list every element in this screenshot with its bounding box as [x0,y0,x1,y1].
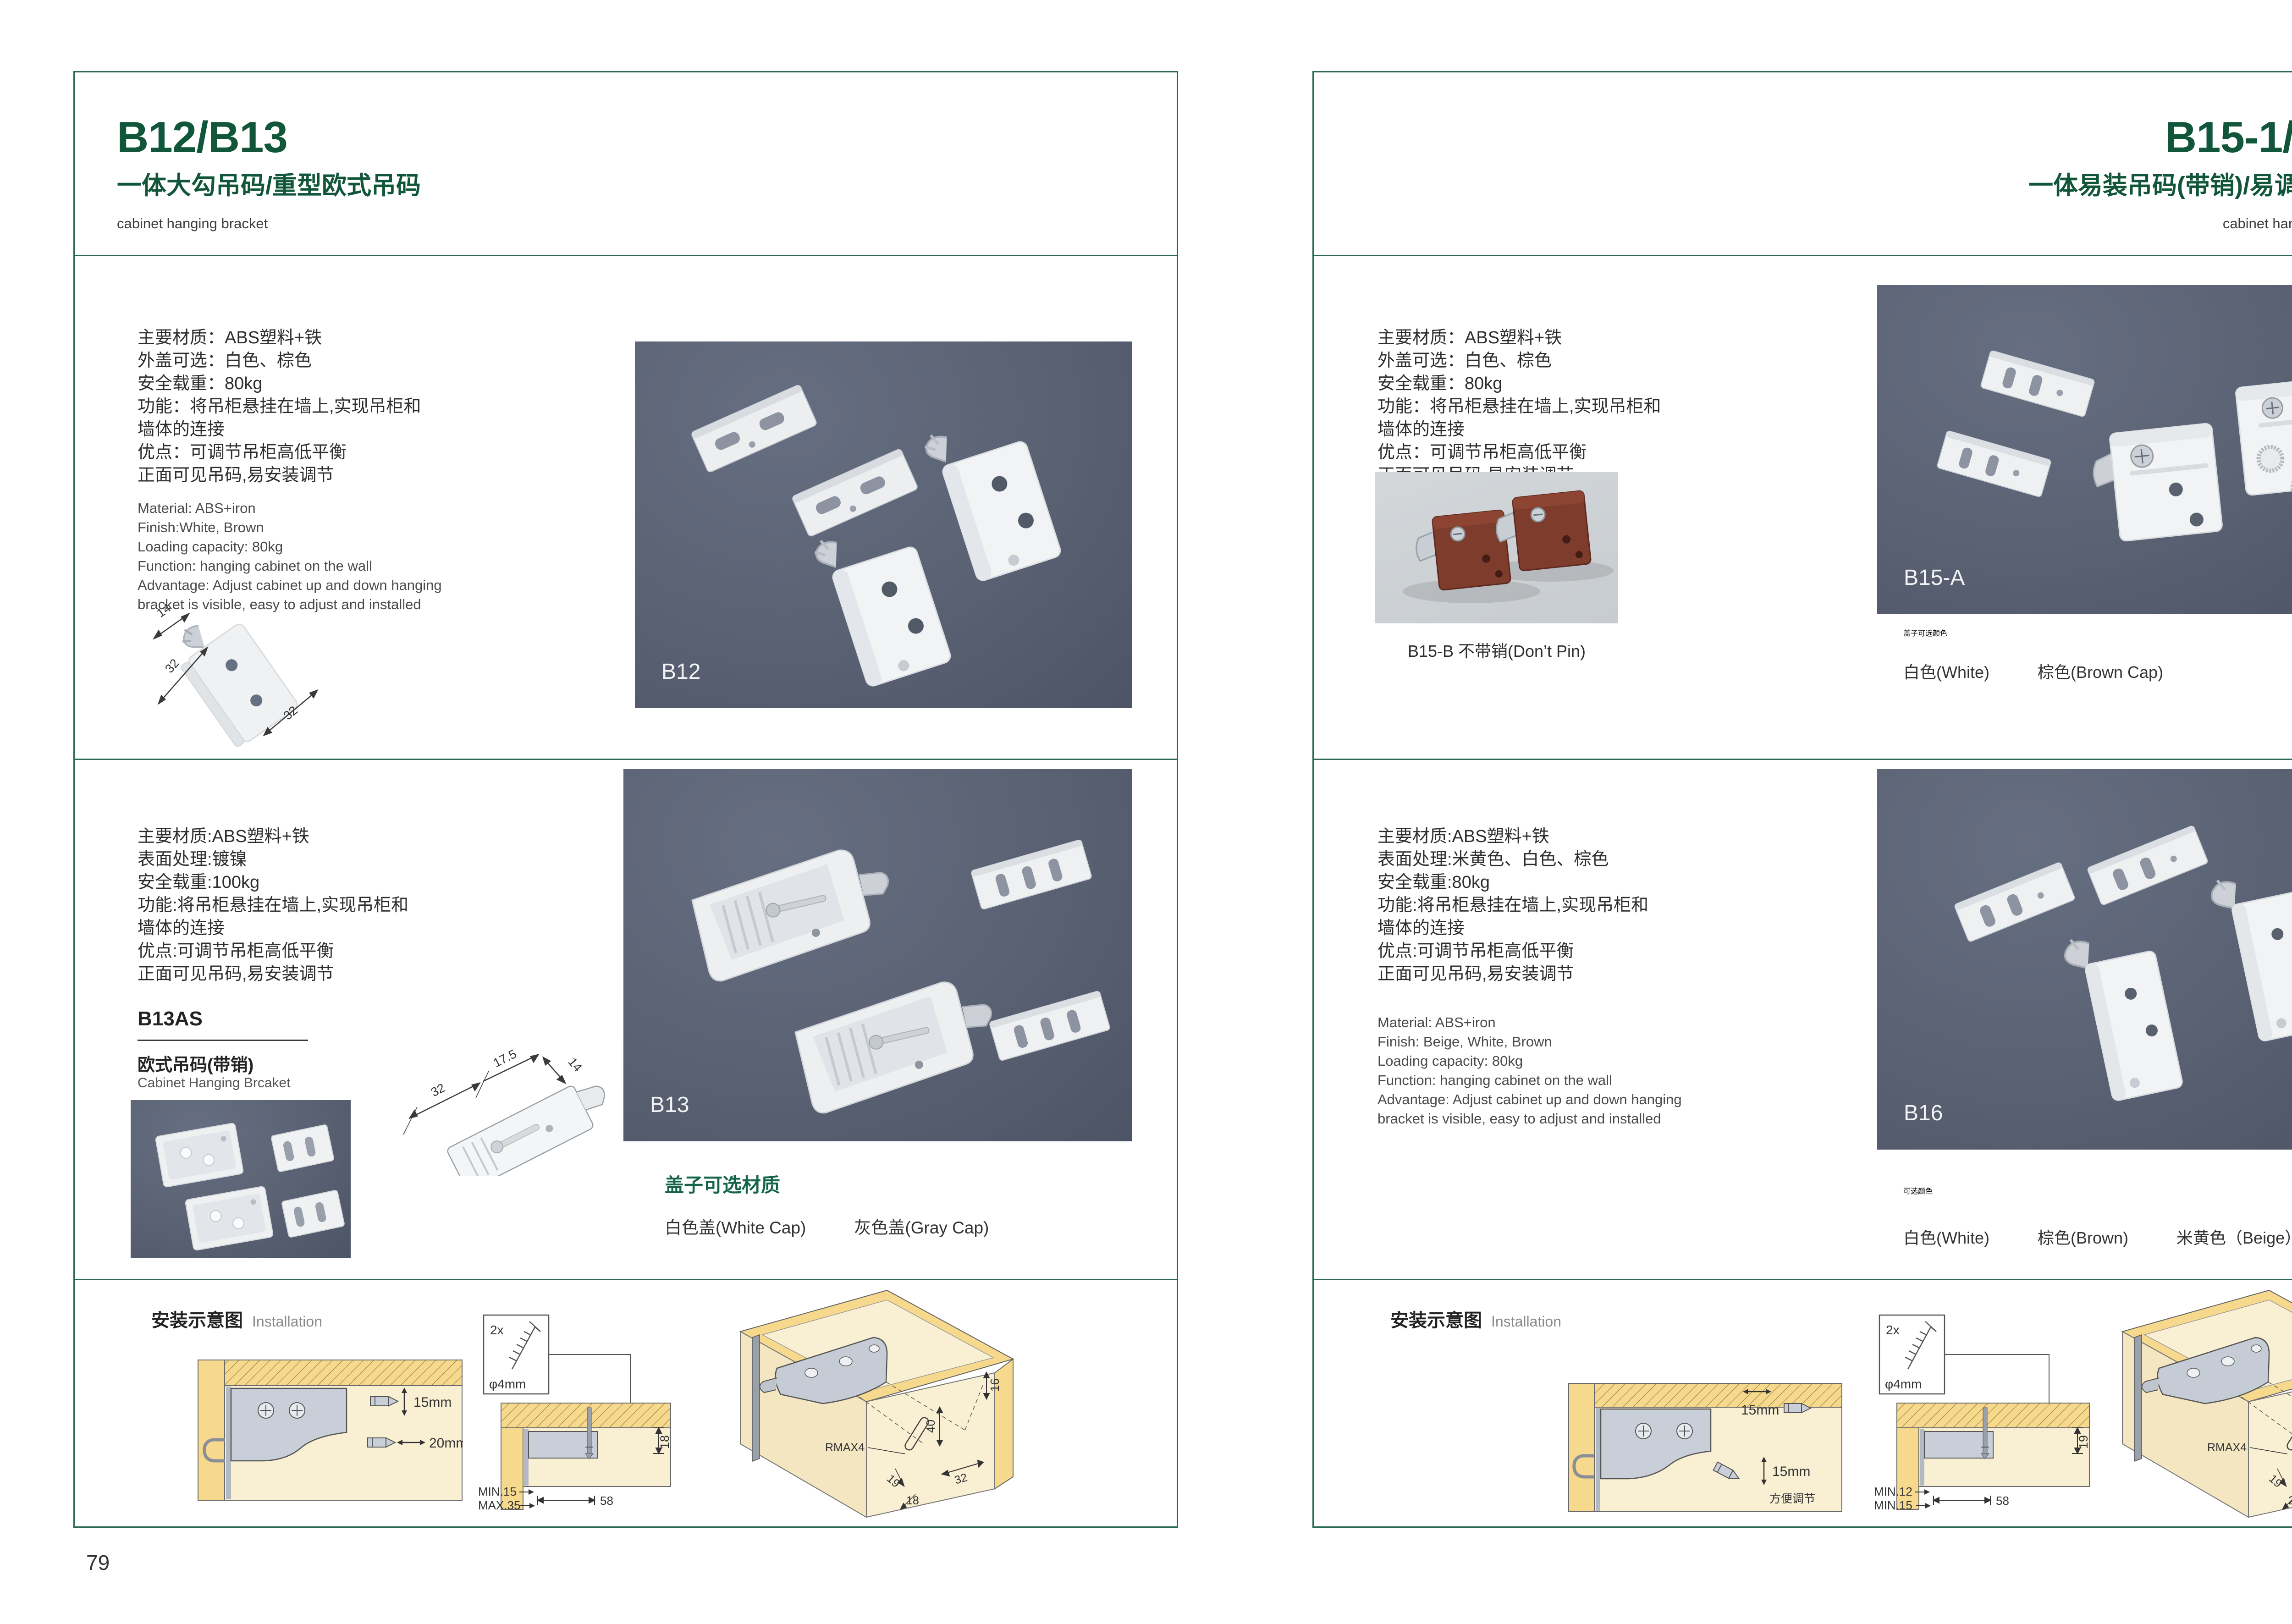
spec-line: 主要材质：ABS塑料+铁 [1377,326,1661,349]
spec-line: 优点：可调节吊柜高低平衡 [1377,441,1661,464]
b16-options: 白色(White)棕色(Brown)米黄色（Beige） [1903,1225,2292,1249]
dim-label: RMAX4 [2207,1441,2247,1454]
spec-line: 正面可见吊码,易安装调节 [138,963,408,985]
dim-label: 15mm [1741,1403,1779,1418]
dim-label: 20 [2288,1494,2292,1507]
spec-line: 优点:可调节吊柜高低平衡 [138,940,408,963]
photo-label: B13 [650,1092,689,1118]
screw-diameter: φ4mm [489,1377,526,1391]
dim-label: 58 [600,1494,613,1508]
installation-title-cn: 安装示意图 [1390,1310,1482,1331]
install-diagram-screw-section: 2x φ4mm 18 MIN.15 MAX.35 [474,1313,672,1510]
page-tagline: cabinet hanging bracket [117,216,268,231]
spec-line: 功能:将吊柜悬挂在墙上,实现吊柜和 [138,894,408,917]
dim-58 [1934,1496,1990,1505]
install-diagram-cross-section: 15mm 15mm 方便调节 [1568,1348,1843,1513]
b15-options: 白色(White)棕色(Brown Cap) [1903,659,2211,683]
spec-line: 外盖可选：白色、棕色 [138,349,421,372]
spec-line: bracket is visible, easy to adjust and i… [1377,1109,1682,1129]
install-diagram-screw-section: 2x φ4mm 19 MIN.12 MIN.15 [1870,1313,2090,1510]
b13-options: 白色盖(White Cap)灰色盖(Gray Cap) [665,1214,1037,1239]
dim-label: MAX.35 [478,1498,521,1510]
catalog-spread: B12/B13 一体大勾吊码/重型欧式吊码 cabinet hanging br… [0,0,2292,1624]
installation-heading: 安装示意图Installation [1390,1305,1561,1332]
spec-line: Finish: Beige, White, Brown [1377,1032,1682,1051]
dim-label: 58 [1996,1494,2009,1508]
metal-rail [271,1124,334,1172]
option-white: 白色(White) [1903,1228,1989,1247]
dim-label: 32 [429,1081,447,1099]
dim-label: 20mm [429,1436,463,1451]
metal-rail [2087,825,2209,905]
b13-specs-cn: 主要材质:ABS塑料+铁 表面处理:镀镍 安全载重:100kg 功能:将吊柜悬挂… [138,825,408,985]
spec-line: 正面可见吊码,易安装调节 [138,464,421,487]
installation-heading: 安装示意图Installation [151,1305,322,1332]
page-right-header-divider [1312,255,2292,256]
page-subtitle: 一体大勾吊码/重型欧式吊码 [117,173,421,198]
spec-line: 主要材质：ABS塑料+铁 [138,326,421,349]
b15b-product-photo [1375,472,1618,623]
dim-label: 15mm [413,1395,452,1410]
b12-specs-cn: 主要材质：ABS塑料+铁 外盖可选：白色、棕色 安全载重：80kg 功能：将吊柜… [138,326,421,487]
metal-rail [792,448,919,537]
spec-line: 墙体的连接 [1377,917,1648,940]
option-white-cap: 白色盖(White Cap) [665,1218,806,1237]
b15b-caption: B15-B 不带销(Don’t Pin) [1366,638,1627,662]
screw-diameter: φ4mm [1885,1377,1922,1391]
dim-label: 18 [658,1435,672,1449]
photo-label: B15-A [1904,565,1965,590]
hanging-bracket [2062,923,2183,1105]
hanging-bracket [2235,377,2292,505]
page-tagline: cabinet hanging bracket [1650,216,2292,231]
spec-line: Advantage: Adjust cabinet up and down ha… [1377,1090,1682,1109]
cover-plate [155,1123,244,1188]
spec-line: Material: ABS+iron [138,499,442,518]
spec-line: 优点：可调节吊柜高低平衡 [138,441,421,464]
wall-panel [1569,1383,1594,1512]
b16-options-title: 可选颜色 [1903,1185,1933,1196]
option-white: 白色(White) [1903,663,1989,682]
dim-label: MIN.15 [1874,1498,1912,1510]
b13-name-en: Cabinet Hanging Brcaket [138,1075,291,1091]
hanging-bracket [689,841,902,983]
bracket-outline [446,1073,616,1176]
spec-line: Finish:White, Brown [138,518,442,537]
screw-count: 2x [490,1323,504,1337]
dim-label: 32 [162,656,182,676]
dim-label: 18 [906,1494,919,1507]
spec-line: 功能:将吊柜悬挂在墙上,实现吊柜和 [1377,894,1648,917]
spec-line: 正面可见吊码,易安装调节 [1377,963,1648,985]
b15-specs-cn: 主要材质：ABS塑料+铁 外盖可选：白色、棕色 安全载重：80kg 功能：将吊柜… [1377,326,1661,487]
page-title: B12/B13 [117,116,287,160]
hanging-bracket [922,408,1062,585]
spec-line: 主要材质:ABS塑料+铁 [1377,825,1648,848]
wall-rail [524,1429,529,1486]
option-brown-cap: 棕色(Brown Cap) [2038,663,2163,682]
install-diagram-cross-section: 15mm 20mm [197,1350,463,1501]
metal-rail [989,991,1111,1061]
dim-label: 14 [565,1055,584,1074]
dim-label: 14 [154,601,173,620]
spec-line: 安全载重:100kg [138,871,408,894]
hanging-bracket [812,513,952,690]
metal-rail [1937,430,2051,497]
page-right-section-divider [1312,759,2292,760]
option-brown: 棕色(Brown) [2038,1228,2128,1247]
cabinet-top-panel [1897,1403,2089,1428]
installation-title-en: Installation [252,1313,322,1330]
wall-rail [1596,1408,1600,1511]
metal-rail [1980,350,2095,417]
cabinet-top-panel [225,1360,462,1386]
leader-line [549,1354,630,1403]
wall-panel [198,1360,225,1500]
spec-line: Function: hanging cabinet on the wall [138,556,442,576]
spec-line: 安全载重：80kg [138,372,421,395]
spec-line: 表面处理:米黄色、白色、棕色 [1377,848,1648,871]
metal-rail [971,839,1092,910]
b13-name-cn: 欧式吊码(带销) [138,1051,253,1076]
dim-label: 15mm [1772,1464,1810,1479]
photo-label: B12 [661,659,700,684]
installation-title-en: Installation [1491,1313,1561,1330]
spec-line: 优点:可调节吊柜高低平衡 [1377,940,1648,963]
photo-label: B16 [1904,1101,1943,1126]
b13-product-photo: B13 [623,769,1132,1141]
b13as-product-photo [131,1100,351,1258]
spec-line: 墙体的连接 [138,917,408,940]
option-gray-cap: 灰色盖(Gray Cap) [854,1218,989,1237]
dim-label: 16 [988,1378,1002,1392]
b16-product-photo: B16 [1877,769,2292,1150]
spec-line: 功能：将吊柜悬挂在墙上,实现吊柜和 [1377,395,1661,418]
spec-line: 功能：将吊柜悬挂在墙上,实现吊柜和 [138,395,421,418]
b16-specs-en: Material: ABS+iron Finish: Beige, White,… [1377,1013,1682,1129]
spec-line: Material: ABS+iron [1377,1013,1682,1032]
spec-line: Loading capacity: 80kg [1377,1051,1682,1071]
metal-rail [1954,862,2076,942]
dim-label: RMAX4 [825,1441,865,1454]
spec-line: 安全载重:80kg [1377,871,1648,894]
wall-rail [752,1335,760,1461]
b15a-product-photo: B15-A [1877,285,2292,614]
hanging-bracket [792,973,1005,1115]
b13-options-title: 盖子可选材质 [665,1170,780,1198]
dim-58 [538,1496,595,1505]
cover-plate [185,1186,274,1251]
leader-line [1945,1354,2049,1403]
metal-rail [281,1190,345,1238]
hanging-bracket [2089,423,2222,544]
brown-bracket [1413,510,1511,592]
spec-line: 墙体的连接 [1377,418,1661,441]
spec-line: Function: hanging cabinet on the wall [1377,1071,1682,1090]
page-title: B15-1/B16 [1650,116,2292,160]
cabinet-top-panel [501,1403,671,1428]
wall-rail [1920,1429,1924,1486]
spec-line: 表面处理:镀镍 [138,848,408,871]
spec-line: 外盖可选：白色、棕色 [1377,349,1661,372]
page-number-left: 79 [86,1550,110,1575]
wall-rail [2134,1335,2142,1461]
spec-line: 安全载重：80kg [1377,372,1661,395]
page-subtitle: 一体易装吊码(带销)/易调节吊码 [1650,173,2292,198]
hanging-bracket [2209,864,2292,1045]
dim-label: 19 [2077,1435,2090,1449]
dim-label: 40 [924,1420,937,1433]
wall-rail [226,1387,231,1499]
option-beige: 米黄色（Beige） [2176,1228,2292,1247]
b16-specs-cn: 主要材质:ABS塑料+铁 表面处理:米黄色、白色、棕色 安全载重:80kg 功能… [1377,825,1648,985]
b13-code-underline [138,1040,308,1041]
b13as-dimension-diagram: 32 17.5 14 [399,1020,619,1176]
screw-count: 2x [1886,1323,1900,1337]
spec-line: 主要材质:ABS塑料+铁 [138,825,408,848]
page-left-section-divider [73,759,1178,760]
page-left-header-divider [73,255,1178,256]
b12-product-photo: B12 [635,341,1132,708]
installation-title-cn: 安装示意图 [151,1310,243,1331]
metal-rail [691,384,818,473]
install-diagram-perspective: 30 32 RMAX4 19 20 32 [2090,1279,2292,1522]
cabinet-top-panel [1594,1383,1842,1407]
spec-line: 墙体的连接 [138,418,421,441]
b13-product-code: B13AS [138,1007,203,1030]
b15-options-title: 盖子可选颜色 [1903,627,1947,638]
hanging-bracket [164,601,299,749]
note-label: 方便调节 [1769,1492,1815,1505]
dim-label: MIN.12 [1874,1485,1912,1498]
install-diagram-perspective: 16 40 RMAX4 19 18 32 [708,1279,1029,1522]
spec-line: Loading capacity: 80kg [138,537,442,556]
dim-label: MIN.15 [478,1485,517,1498]
b12-dimension-photo: 14 32 32 [128,591,344,752]
